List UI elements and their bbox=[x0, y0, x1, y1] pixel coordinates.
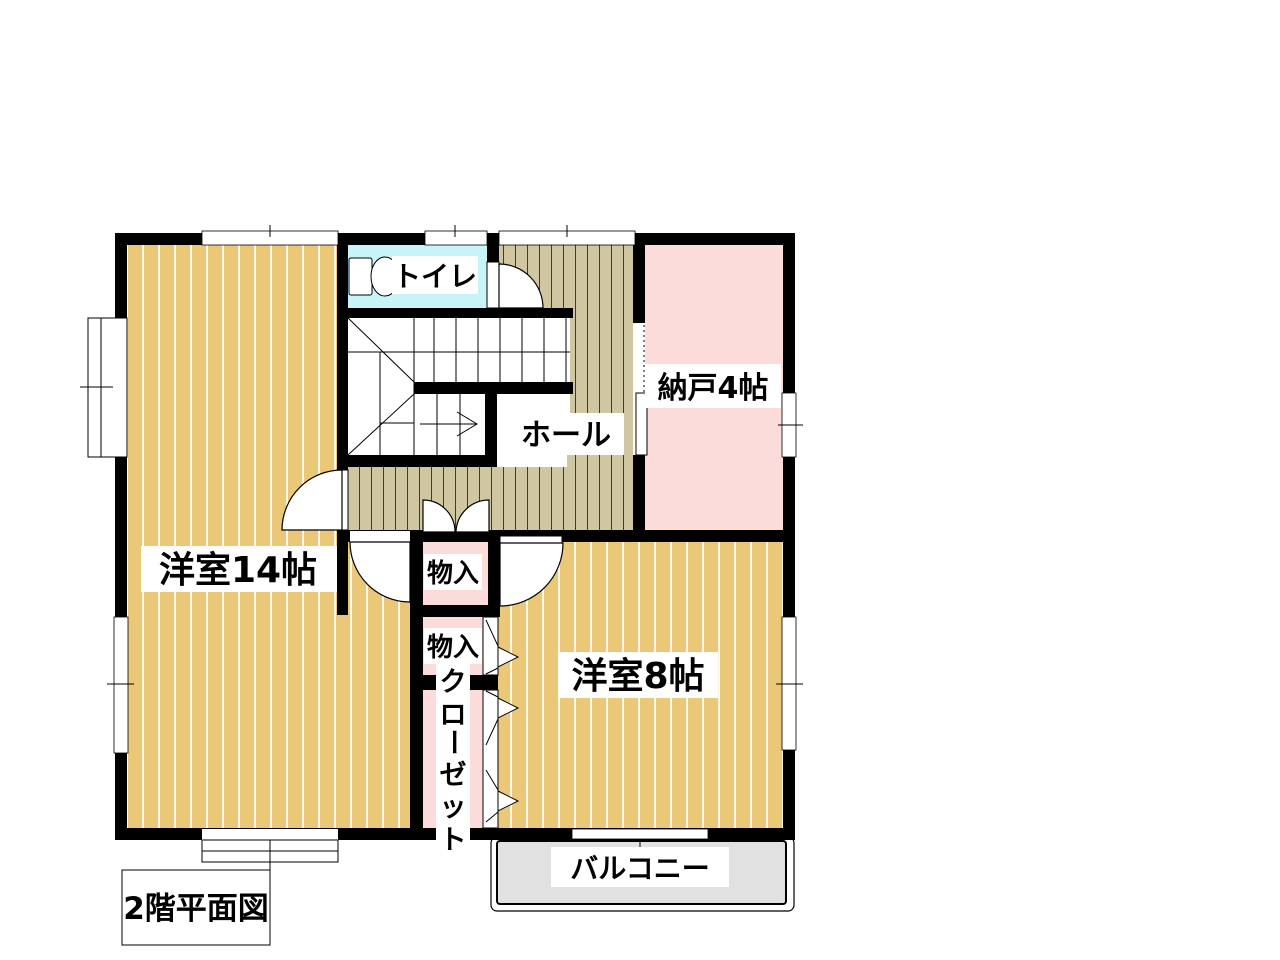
closet-bottom-door-track bbox=[483, 690, 498, 828]
wall-room14-right-stub bbox=[337, 530, 348, 615]
closet-vertical-label-char: ー bbox=[437, 729, 468, 756]
room14-floor bbox=[127, 245, 337, 828]
wall-toilet-right bbox=[487, 245, 499, 262]
wall-stairs-top bbox=[337, 308, 573, 318]
closet-vertical-label-char: ク bbox=[440, 667, 467, 698]
wall-stairs-middle bbox=[414, 382, 573, 394]
room8-label: 洋室8帖 bbox=[571, 656, 704, 697]
wall-stairs-bottom bbox=[337, 455, 497, 467]
hall-floor-bottom bbox=[347, 467, 633, 530]
floor-plan-drawing: 洋室14帖 洋室8帖 トイレ ホール 納戸4帖 物入 物入 ク ロ ー ゼ ッ … bbox=[0, 0, 1280, 960]
window-left-lower bbox=[114, 617, 128, 753]
wall-closet-top-right bbox=[488, 530, 500, 617]
window-top-toilet bbox=[425, 231, 487, 245]
balcony-label: バルコニー bbox=[570, 852, 709, 885]
room14-label: 洋室14帖 bbox=[159, 550, 317, 591]
floor-plan-caption: 2階平面図 bbox=[123, 891, 269, 927]
window-bottom-room14-gap bbox=[202, 829, 338, 840]
closet-top-label: 物入 bbox=[427, 559, 479, 589]
room8-door-leaf bbox=[500, 536, 562, 543]
wall-storage-left-upper bbox=[633, 245, 645, 323]
toilet-label: トイレ bbox=[393, 260, 477, 293]
closet-mid-label: 物入 bbox=[427, 633, 479, 663]
room14-corner-door-opening bbox=[350, 531, 410, 542]
hall-label: ホール bbox=[521, 418, 611, 453]
closet-mid-door-track bbox=[483, 617, 498, 675]
closet-vertical-label-char: ッ bbox=[440, 792, 467, 823]
closet-vertical-label-char: ト bbox=[440, 825, 467, 856]
storage-label: 納戸4帖 bbox=[658, 371, 769, 406]
wall-room14-right-upper bbox=[337, 245, 348, 470]
toilet-tank-icon bbox=[349, 258, 372, 295]
wall-closet-divider-1 bbox=[410, 605, 500, 617]
closet-vertical-label-char: ゼ bbox=[440, 760, 467, 791]
floor-plan-page: 洋室14帖 洋室8帖 トイレ ホール 納戸4帖 物入 物入 ク ロ ー ゼ ッ … bbox=[0, 0, 1280, 960]
toilet-door-leaf bbox=[487, 262, 499, 308]
wall-storage-left-lower bbox=[633, 455, 645, 530]
closet-vertical-label-char: ロ bbox=[440, 700, 467, 731]
window-bottom-room8 bbox=[572, 829, 708, 839]
